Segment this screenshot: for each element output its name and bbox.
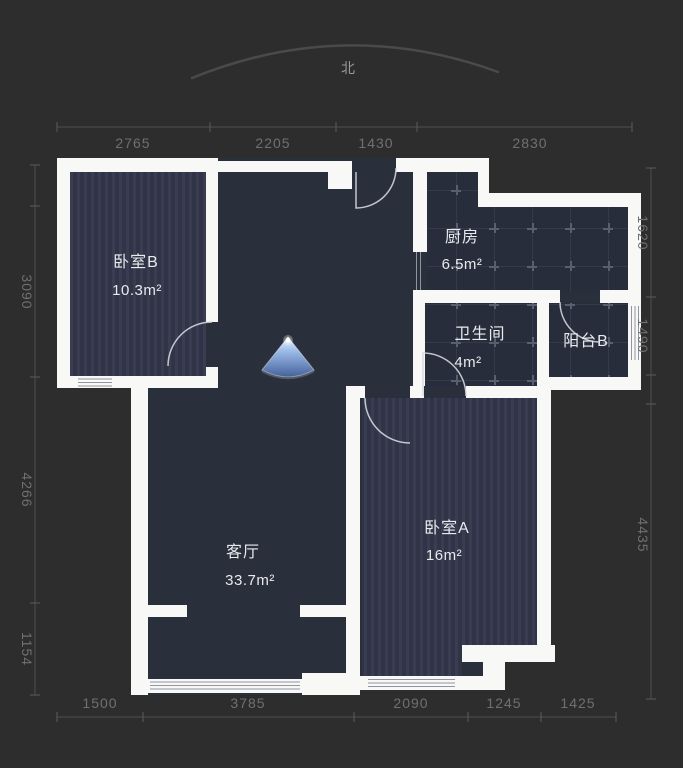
- dim-left-2: 4266: [19, 472, 35, 507]
- room-bathroom[interactable]: [425, 303, 537, 386]
- dim-bottom-2: 3785: [230, 695, 265, 711]
- floor-plan-viewer: 北: [0, 0, 683, 768]
- dim-bottom-4: 1245: [486, 695, 521, 711]
- living-area: 33.7m²: [225, 572, 275, 589]
- dim-bottom-5: 1425: [560, 695, 595, 711]
- dim-right-2: 1490: [635, 318, 651, 353]
- dim-left-1: 3090: [19, 274, 35, 309]
- kitchen-name: 厨房: [445, 228, 479, 246]
- dim-top-4: 2830: [512, 135, 547, 151]
- dim-bottom-3: 2090: [393, 695, 428, 711]
- room-bedroom-a[interactable]: [362, 398, 537, 676]
- bedroom-b-area: 10.3m²: [112, 282, 162, 299]
- room-bedroom-b[interactable]: [70, 172, 206, 376]
- bedroom-a-area: 16m²: [426, 547, 462, 564]
- floor-plan-canvas: 北: [0, 0, 683, 768]
- living-name: 客厅: [226, 543, 260, 561]
- dim-top-2: 2205: [255, 135, 290, 151]
- dim-top-3: 1430: [358, 135, 393, 151]
- north-label: 北: [341, 60, 355, 76]
- bathroom-name: 卫生间: [454, 325, 505, 343]
- kitchen-area: 6.5m²: [442, 256, 483, 273]
- dim-bottom-1: 1500: [82, 695, 117, 711]
- bedroom-b-name: 卧室B: [113, 253, 159, 271]
- dim-right-1: 1620: [635, 215, 651, 250]
- bedroom-a-name: 卧室A: [424, 519, 470, 537]
- dim-left-3: 1154: [19, 632, 35, 666]
- balcony-b-name: 阳台B: [563, 332, 609, 350]
- dim-right-3: 4435: [635, 517, 651, 552]
- bathroom-area: 4m²: [454, 354, 481, 371]
- dim-top-1: 2765: [115, 135, 150, 151]
